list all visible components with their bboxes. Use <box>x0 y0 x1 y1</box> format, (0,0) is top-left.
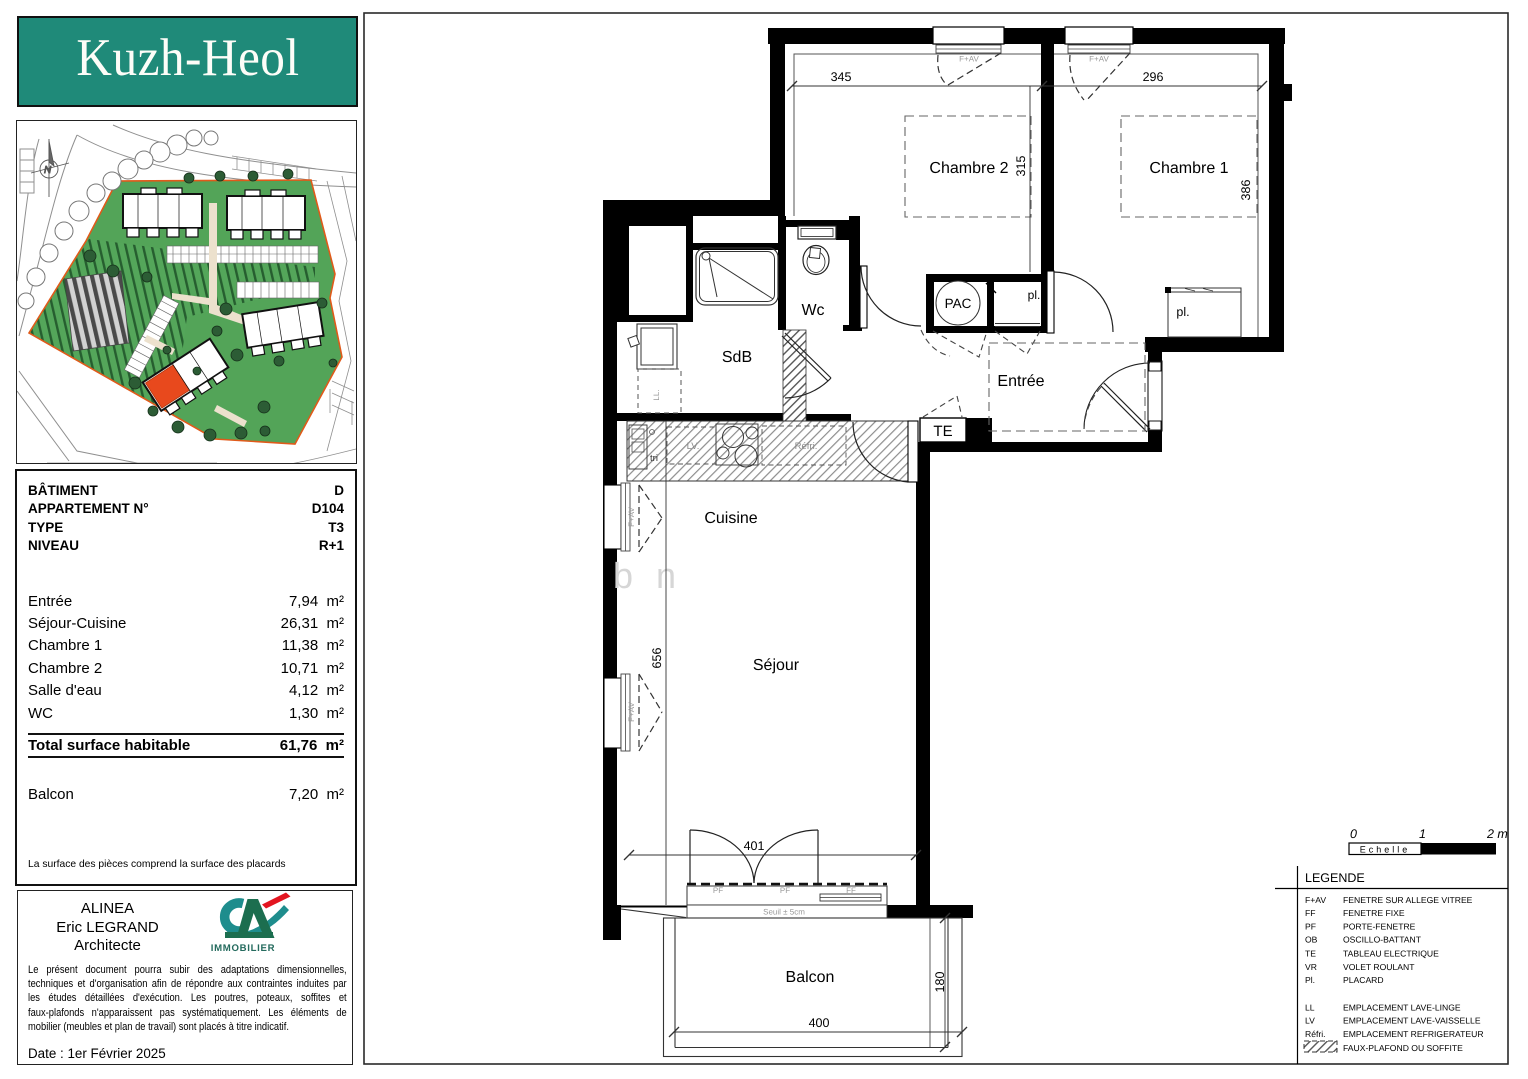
svg-text:SdB: SdB <box>722 349 752 366</box>
svg-text:656: 656 <box>650 648 664 669</box>
svg-text:pl.: pl. <box>1028 288 1041 302</box>
svg-text:Réfri.: Réfri. <box>1305 1029 1326 1039</box>
svg-text:386: 386 <box>1239 180 1253 201</box>
svg-text:EMPLACEMENT REFRIGERATEUR: EMPLACEMENT REFRIGERATEUR <box>1343 1029 1484 1039</box>
svg-text:PORTE-FENETRE: PORTE-FENETRE <box>1343 921 1416 931</box>
svg-text:FAUX-PLAFOND OU SOFFITE: FAUX-PLAFOND OU SOFFITE <box>1343 1043 1463 1053</box>
svg-text:FENETRE SUR ALLEGE VITREE: FENETRE SUR ALLEGE VITREE <box>1343 895 1473 905</box>
svg-text:TE: TE <box>933 423 952 440</box>
svg-text:180: 180 <box>933 972 947 993</box>
svg-text:LEGENDE: LEGENDE <box>1305 871 1365 885</box>
svg-text:F+AV: F+AV <box>627 507 636 527</box>
svg-text:Séjour: Séjour <box>753 657 800 674</box>
svg-text:Seuil ± 5cm: Seuil ± 5cm <box>763 908 805 917</box>
svg-text:FF: FF <box>846 886 856 895</box>
svg-text:400: 400 <box>809 1016 830 1030</box>
svg-text:Réfri.: Réfri. <box>795 441 818 452</box>
svg-text:2 m: 2 m <box>1486 827 1508 841</box>
svg-text:345: 345 <box>831 70 852 84</box>
svg-text:Balcon: Balcon <box>786 969 835 986</box>
svg-text:PLACARD: PLACARD <box>1343 975 1384 985</box>
svg-text:Chambre 1: Chambre 1 <box>1149 160 1228 177</box>
svg-text:FF: FF <box>1305 908 1316 918</box>
svg-text:1: 1 <box>1419 827 1426 841</box>
svg-text:VR: VR <box>1305 962 1317 972</box>
svg-text:EMPLACEMENT LAVE-VAISSELLE: EMPLACEMENT LAVE-VAISSELLE <box>1343 1016 1481 1026</box>
svg-text:F+AV: F+AV <box>1305 895 1326 905</box>
svg-text:F+AV: F+AV <box>959 55 979 64</box>
svg-text:LV.: LV. <box>687 441 700 452</box>
svg-text:401: 401 <box>744 839 765 853</box>
svg-text:PAC: PAC <box>945 296 972 311</box>
svg-text:EMPLACEMENT LAVE-LINGE: EMPLACEMENT LAVE-LINGE <box>1343 1002 1461 1012</box>
svg-text:Entrée: Entrée <box>997 373 1044 390</box>
svg-text:296: 296 <box>1143 70 1164 84</box>
svg-text:Wc: Wc <box>801 302 824 319</box>
svg-text:F+AV: F+AV <box>1089 55 1109 64</box>
svg-text:TABLEAU ELECTRIQUE: TABLEAU ELECTRIQUE <box>1343 949 1439 959</box>
svg-text:Pl.: Pl. <box>1305 975 1315 985</box>
svg-text:LV: LV <box>1305 1016 1315 1026</box>
svg-text:LL.: LL. <box>652 389 661 400</box>
svg-text:VOLET ROULANT: VOLET ROULANT <box>1343 962 1415 972</box>
svg-text:LL: LL <box>1305 1002 1315 1012</box>
svg-text:OSCILLO-BATTANT: OSCILLO-BATTANT <box>1343 935 1422 945</box>
svg-text:PF: PF <box>713 886 723 895</box>
svg-text:Echelle: Echelle <box>1360 845 1411 855</box>
svg-text:b: b <box>613 555 633 596</box>
svg-text:F+AV: F+AV <box>627 702 636 722</box>
svg-text:pl.: pl. <box>1176 305 1189 319</box>
svg-text:PF: PF <box>1305 921 1316 931</box>
svg-text:315: 315 <box>1014 156 1028 177</box>
svg-text:PF: PF <box>780 886 790 895</box>
svg-text:FENETRE FIXE: FENETRE FIXE <box>1343 908 1405 918</box>
svg-text:OB: OB <box>1305 935 1318 945</box>
svg-text:Chambre 2: Chambre 2 <box>929 160 1008 177</box>
svg-text:Cuisine: Cuisine <box>704 510 757 527</box>
svg-text:0: 0 <box>1350 827 1357 841</box>
svg-text:TE: TE <box>1305 949 1316 959</box>
svg-text:tri: tri <box>650 453 658 464</box>
